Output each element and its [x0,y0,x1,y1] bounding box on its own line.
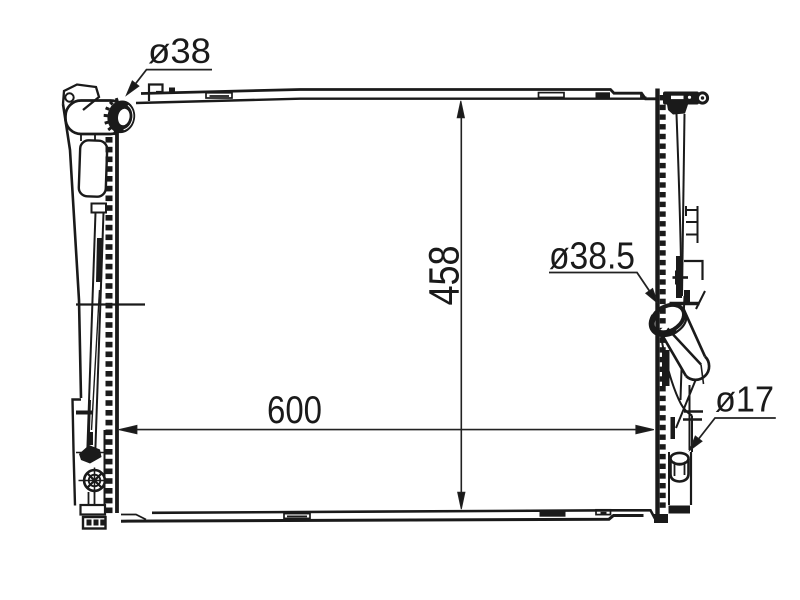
svg-text:600: 600 [267,389,322,432]
svg-text:ø38: ø38 [148,32,211,71]
svg-text:458: 458 [420,246,468,306]
svg-text:ø38.5: ø38.5 [549,236,635,278]
svg-text:ø17: ø17 [715,379,774,420]
